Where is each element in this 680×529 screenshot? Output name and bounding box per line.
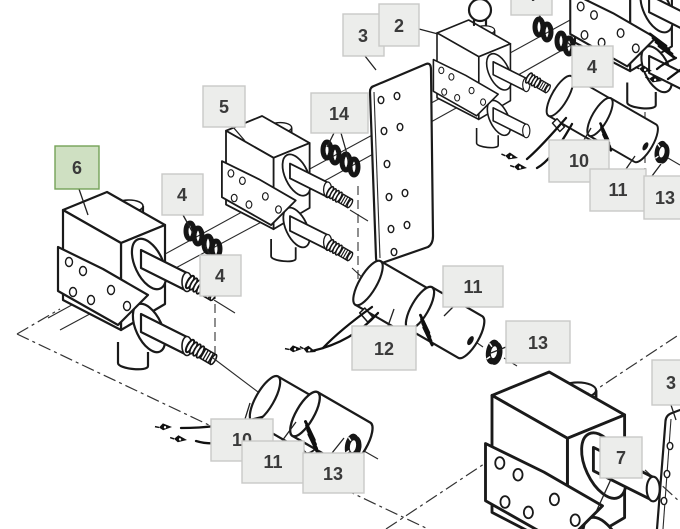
callout-11a-label: 11: [608, 180, 627, 200]
parts-diagram: 6 5 4 4 14 3 2 4 4 10 11 13: [0, 0, 680, 529]
mounting-plate-3-partial: [657, 410, 680, 529]
callout-4a-label: 4: [177, 185, 187, 205]
callout-13-chain2[interactable]: 13: [644, 176, 680, 219]
bushing-4-b: [204, 236, 220, 257]
bushing-14-b: [342, 154, 358, 175]
diagram-canvas: 6 5 4 4 14 3 2 4 4 10 11 13: [0, 0, 680, 529]
callout-3-b[interactable]: 3: [652, 360, 680, 405]
stud-v5-upper: [325, 186, 354, 210]
stud-v5-lower: [325, 239, 354, 263]
callout-4-c[interactable]: 4: [511, 0, 552, 15]
valve-assembly-6: [58, 192, 192, 369]
callout-3-a[interactable]: 3: [343, 14, 384, 56]
callout-7-label: 7: [616, 448, 626, 468]
callout-13b-label: 13: [528, 333, 548, 353]
stud-v6-lower: [184, 339, 218, 367]
bushing-4-c: [535, 19, 551, 40]
callout-13a-label: 13: [655, 188, 675, 208]
callout-11-chain6[interactable]: 11: [242, 441, 304, 483]
callout-6[interactable]: 6: [55, 146, 99, 189]
callout-4-b[interactable]: 4: [200, 255, 241, 296]
callout-10a-label: 10: [569, 151, 589, 171]
callout-4-a[interactable]: 4: [162, 174, 203, 215]
callout-11b-label: 11: [463, 277, 482, 297]
callout-6-label: 6: [72, 158, 82, 178]
callout-5[interactable]: 5: [203, 86, 245, 127]
callout-2-label: 2: [394, 16, 404, 36]
callout-12-label: 12: [374, 339, 394, 359]
callout-4b-label: 4: [215, 266, 225, 286]
callout-13c-label: 13: [323, 464, 343, 484]
callout-5-label: 5: [219, 97, 229, 117]
bushing-14-a: [323, 142, 339, 163]
callout-4d-label: 4: [587, 57, 597, 77]
callout-14[interactable]: 14: [311, 93, 368, 133]
callout-4-d[interactable]: 4: [572, 46, 613, 87]
callout-14-label: 14: [329, 104, 349, 124]
valve-assembly-2: [433, 20, 529, 148]
callout-11-chain2[interactable]: 11: [590, 169, 646, 211]
nut-13-chain2: [653, 140, 672, 165]
callout-11c-label: 11: [263, 452, 282, 472]
callout-2[interactable]: 2: [379, 4, 419, 46]
callout-7[interactable]: 7: [600, 437, 642, 478]
callout-12[interactable]: 12: [352, 326, 416, 370]
callout-4c-label: 4: [526, 0, 536, 5]
callout-3a-label: 3: [358, 26, 368, 46]
mounting-plate-3: [370, 64, 433, 264]
bushing-4-d: [557, 33, 573, 54]
callout-11-chain5[interactable]: 11: [443, 266, 503, 307]
bushing-4-a: [186, 223, 202, 244]
callout-13-chain5[interactable]: 13: [506, 321, 570, 363]
callout-3b-label: 3: [666, 373, 676, 393]
valve-assembly-5: [222, 116, 332, 261]
callout-13-chain6[interactable]: 13: [303, 453, 364, 493]
